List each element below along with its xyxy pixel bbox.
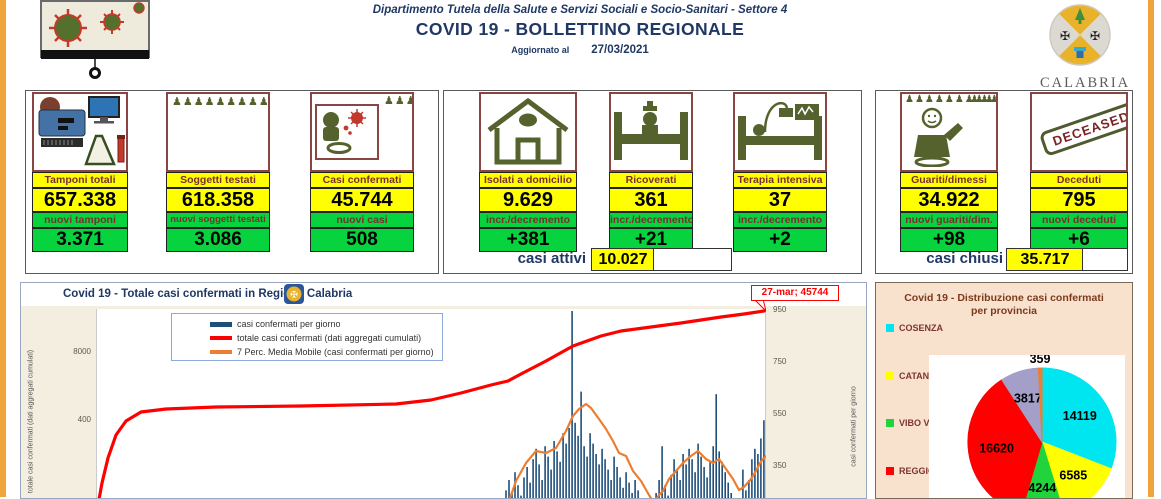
stat-label: Deceduti (1030, 172, 1128, 188)
department-line: Dipartimento Tutela della Salute e Servi… (280, 4, 880, 16)
svg-text:359: 359 (1030, 355, 1051, 366)
svg-text:✠: ✠ (1060, 29, 1070, 43)
casi-attivi-spare-box (653, 248, 732, 271)
stat-label: Ricoverati (609, 172, 693, 188)
legend-swatch-cosenza (886, 324, 894, 332)
stat-value: 795 (1030, 188, 1128, 212)
casi-chiusi-value: 35.717 (1006, 248, 1084, 271)
stat-sub-label: nuovi tamponi (32, 212, 128, 228)
people-grid-icon: ♟♟♟♟♟♟♟♟♟♟♟♟♟♟♟♟♟♟♟♟♟♟♟♟♟♟♟♟♟♟♟♟♟♟♟♟♟♟♟♟… (166, 92, 270, 172)
legend-label: casi confermati per giorno (237, 319, 341, 329)
deceased-stamp-text: DECEASED (1039, 100, 1128, 157)
casi-attivi-value: 10.027 (591, 248, 655, 271)
stat-label: Soggetti testati (166, 172, 270, 188)
deceased-stamp-icon: DECEASED (1030, 92, 1128, 172)
legend-swatch-bars (210, 322, 232, 327)
stat-guariti: ♟♟♟♟♟♟♟♟♟♟♟♟♟♟♟♟♟♟♟♟♟♟♟♟♟♟♟♟♟♟♟♟♟♟♟♟♟♟♟♟… (900, 92, 998, 252)
stat-sub-label: nuovi guariti/dim. (900, 212, 998, 228)
people-column-glyphs: ♟♟♟♟♟♟♟♟♟♟♟♟♟♟♟♟♟♟♟♟♟♟♟♟♟♟♟♟♟♟♟♟♟♟♟♟♟♟♟♟… (384, 96, 410, 106)
legend-label: COSENZA (899, 323, 943, 333)
legend-label: 7 Perc. Media Mobile (casi confermati pe… (237, 347, 434, 357)
stat-value: 657.338 (32, 188, 128, 212)
stat-sub-value: 3.086 (166, 228, 270, 252)
svg-text:14119: 14119 (1063, 409, 1097, 423)
left-axis-tick: 400 (51, 415, 91, 424)
right-axis-label: casi confermati per giorno (851, 347, 858, 499)
legend-swatch-reggio (886, 467, 894, 475)
legend-swatch-vibo (886, 419, 894, 427)
stat-sub-value: +381 (479, 228, 577, 252)
virus-screen-icon (40, 0, 152, 85)
stat-sub-value: 508 (310, 228, 414, 252)
person-infected-icon: ♟♟♟♟♟♟♟♟♟♟♟♟♟♟♟♟♟♟♟♟♟♟♟♟♟♟♟♟♟♟♟♟♟♟♟♟♟♟♟♟… (310, 92, 414, 172)
stat-tamponi: Tamponi totali 657.338 nuovi tamponi 3.3… (32, 92, 128, 252)
header: Dipartimento Tutela della Salute e Servi… (280, 4, 880, 56)
page-title: COVID 19 - BOLLETTINO REGIONALE (280, 19, 880, 40)
stat-value: 9.629 (479, 188, 577, 212)
svg-text:4244: 4244 (1028, 481, 1056, 495)
svg-text:6585: 6585 (1059, 469, 1087, 483)
stat-label: Guariti/dimessi (900, 172, 998, 188)
stat-value: 37 (733, 188, 827, 212)
pie-legend-item: COSENZA (886, 323, 943, 333)
stat-label: Tamponi totali (32, 172, 128, 188)
stat-terapia: Terapia intensiva 37 incr./decremento +2 (733, 92, 827, 252)
house-icon (479, 92, 577, 172)
chart-legend: casi confermati per giorno totale casi c… (171, 313, 443, 361)
stat-ricoverati: Ricoverati 361 incr./decremento +21 (609, 92, 693, 252)
stat-sub-label: incr./decremento (609, 212, 693, 228)
stat-deceduti: DECEASED Deceduti 795 nuovi deceduti +6 (1030, 92, 1128, 252)
hospital-bed-icon (609, 92, 693, 172)
people-grid-glyphs: ♟♟♟♟♟♟♟♟♟♟♟♟♟♟♟♟♟♟♟♟♟♟♟♟♟♟♟♟♟♟♟♟♟♟♟♟♟♟♟♟… (172, 97, 268, 107)
stat-sub-value: 3.371 (32, 228, 128, 252)
stat-casi-confermati: ♟♟♟♟♟♟♟♟♟♟♟♟♟♟♟♟♟♟♟♟♟♟♟♟♟♟♟♟♟♟♟♟♟♟♟♟♟♟♟♟… (310, 92, 414, 252)
frame-border-left (0, 0, 6, 497)
legend-swatch-ma (210, 350, 232, 354)
lab-analyzer-icon (32, 92, 128, 172)
stat-label: Terapia intensiva (733, 172, 827, 188)
svg-text:16620: 16620 (979, 442, 1014, 456)
updated-label: Aggiornato al (511, 45, 569, 55)
stat-label: Isolati a domicilio (479, 172, 577, 188)
stat-sub-value: +2 (733, 228, 827, 252)
stat-sub-label: nuovi deceduti (1030, 212, 1128, 228)
right-axis-tick: 350 (773, 461, 786, 470)
right-axis-tick: 550 (773, 409, 786, 418)
people-row-glyphs: ♟♟♟♟♟♟♟♟♟♟♟♟♟♟♟♟♟♟♟♟♟♟♟♟♟♟♟♟♟♟♟♟♟♟♟♟♟♟♟♟… (905, 95, 969, 105)
svg-text:3817: 3817 (1014, 391, 1042, 405)
stat-isolati: Isolati a domicilio 9.629 incr./decremen… (479, 92, 577, 252)
casi-attivi-label: casi attivi (478, 250, 586, 267)
casi-chiusi-spare-box (1082, 248, 1128, 271)
updated-date: 27/03/2021 (591, 44, 649, 56)
stat-sub-label: incr./decremento (733, 212, 827, 228)
stat-label: Casi confermati (310, 172, 414, 188)
pie-title: Covid 19 - Distribuzione casi confermati… (898, 292, 1110, 318)
left-axis-label: totale casi confermati (dati aggregati c… (28, 312, 35, 499)
stat-soggetti: ♟♟♟♟♟♟♟♟♟♟♟♟♟♟♟♟♟♟♟♟♟♟♟♟♟♟♟♟♟♟♟♟♟♟♟♟♟♟♟♟… (166, 92, 270, 252)
legend-swatch-catanzaro (886, 372, 894, 380)
stat-sub-value: +98 (900, 228, 998, 252)
daily-cases-chart-panel: Covid 19 - Totale casi confermati in Reg… (20, 282, 867, 499)
icu-bed-icon (733, 92, 827, 172)
province-distribution-panel: Covid 19 - Distribuzione casi confermati… (875, 282, 1133, 499)
province-pie-chart: 1411965854244166203817359 (929, 355, 1125, 499)
legend-swatch-total (210, 336, 232, 340)
calabria-emblem-icon: ✠ ✠ (1045, 2, 1115, 68)
chart-annotation: 27-mar; 45744 (751, 285, 839, 301)
stat-value: 618.358 (166, 188, 270, 212)
frame-border-right (1148, 0, 1154, 497)
svg-text:✠: ✠ (1090, 29, 1100, 43)
stat-value: 361 (609, 188, 693, 212)
stat-sub-label: nuovi casi (310, 212, 414, 228)
calabria-logo: ✠ ✠ CALABRIA (1040, 2, 1120, 92)
recovered-person-icon: ♟♟♟♟♟♟♟♟♟♟♟♟♟♟♟♟♟♟♟♟♟♟♟♟♟♟♟♟♟♟♟♟♟♟♟♟♟♟♟♟… (900, 92, 998, 172)
stat-value: 34.922 (900, 188, 998, 212)
right-axis-tick: 750 (773, 357, 786, 366)
left-axis-tick: 8000 (51, 347, 91, 356)
right-axis-tick: 950 (773, 305, 786, 314)
stat-sub-label: nuovi soggetti testati (166, 212, 270, 228)
stat-value: 45.744 (310, 188, 414, 212)
legend-label: totale casi confermati (dati aggregati c… (237, 333, 421, 343)
stat-sub-label: incr./decremento (479, 212, 577, 228)
casi-chiusi-label: casi chiusi (905, 250, 1003, 267)
people-column-glyphs: ♟♟♟♟♟♟♟♟♟♟♟♟♟♟♟♟♟♟♟♟♟♟♟♟♟♟♟♟♟♟♟♟♟♟♟♟♟♟♟♟… (970, 95, 994, 105)
